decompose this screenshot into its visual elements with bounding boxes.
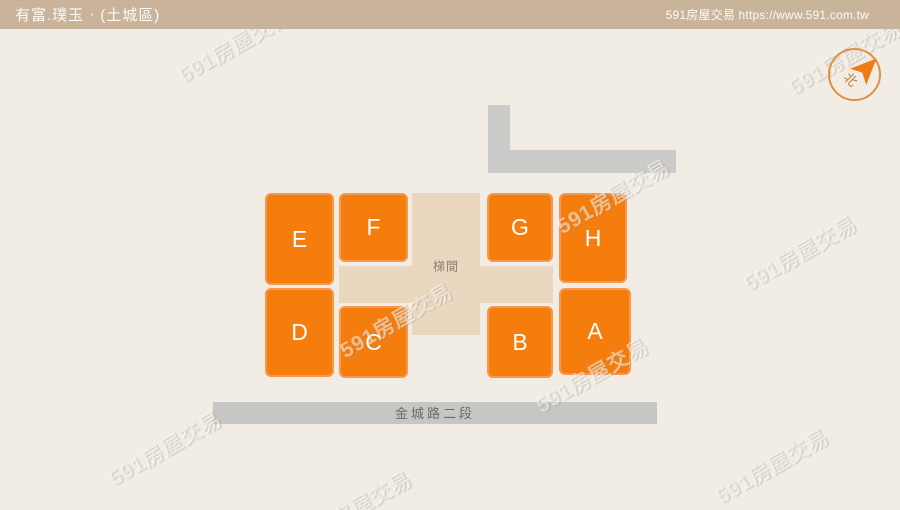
watermark-text: 591房屋交易 (103, 403, 227, 492)
unit-block-d[interactable]: D (265, 288, 334, 377)
site-watermark-url: 591房屋交易 https://www.591.com.tw (666, 6, 900, 23)
watermark-text: 591房屋交易 (738, 208, 862, 297)
unit-block-f[interactable]: F (339, 193, 408, 262)
unit-block-g[interactable]: G (487, 193, 553, 262)
stairwell-label: 梯間 (433, 258, 459, 275)
floorplan-page: 有富.璞玉 ‧ (土城區) 591房屋交易 https://www.591.co… (0, 0, 900, 510)
unit-block-a[interactable]: A (559, 288, 631, 375)
unit-block-e[interactable]: E (265, 193, 334, 285)
road-segment-horizontal (488, 150, 676, 173)
compass: 北 (828, 48, 881, 101)
road-bottom: 金城路二段 (213, 402, 657, 424)
unit-block-c[interactable]: C (339, 306, 408, 378)
watermark-text: 591房屋交易 (710, 421, 834, 510)
top-bar: 有富.璞玉 ‧ (土城區) 591房屋交易 https://www.591.co… (0, 0, 900, 29)
unit-block-h[interactable]: H (559, 193, 627, 283)
unit-block-b[interactable]: B (487, 306, 553, 378)
project-title: 有富.璞玉 ‧ (土城區) (0, 4, 160, 25)
watermark-text: 591房屋交易 (293, 463, 417, 510)
road-name-label: 金城路二段 (395, 407, 475, 420)
